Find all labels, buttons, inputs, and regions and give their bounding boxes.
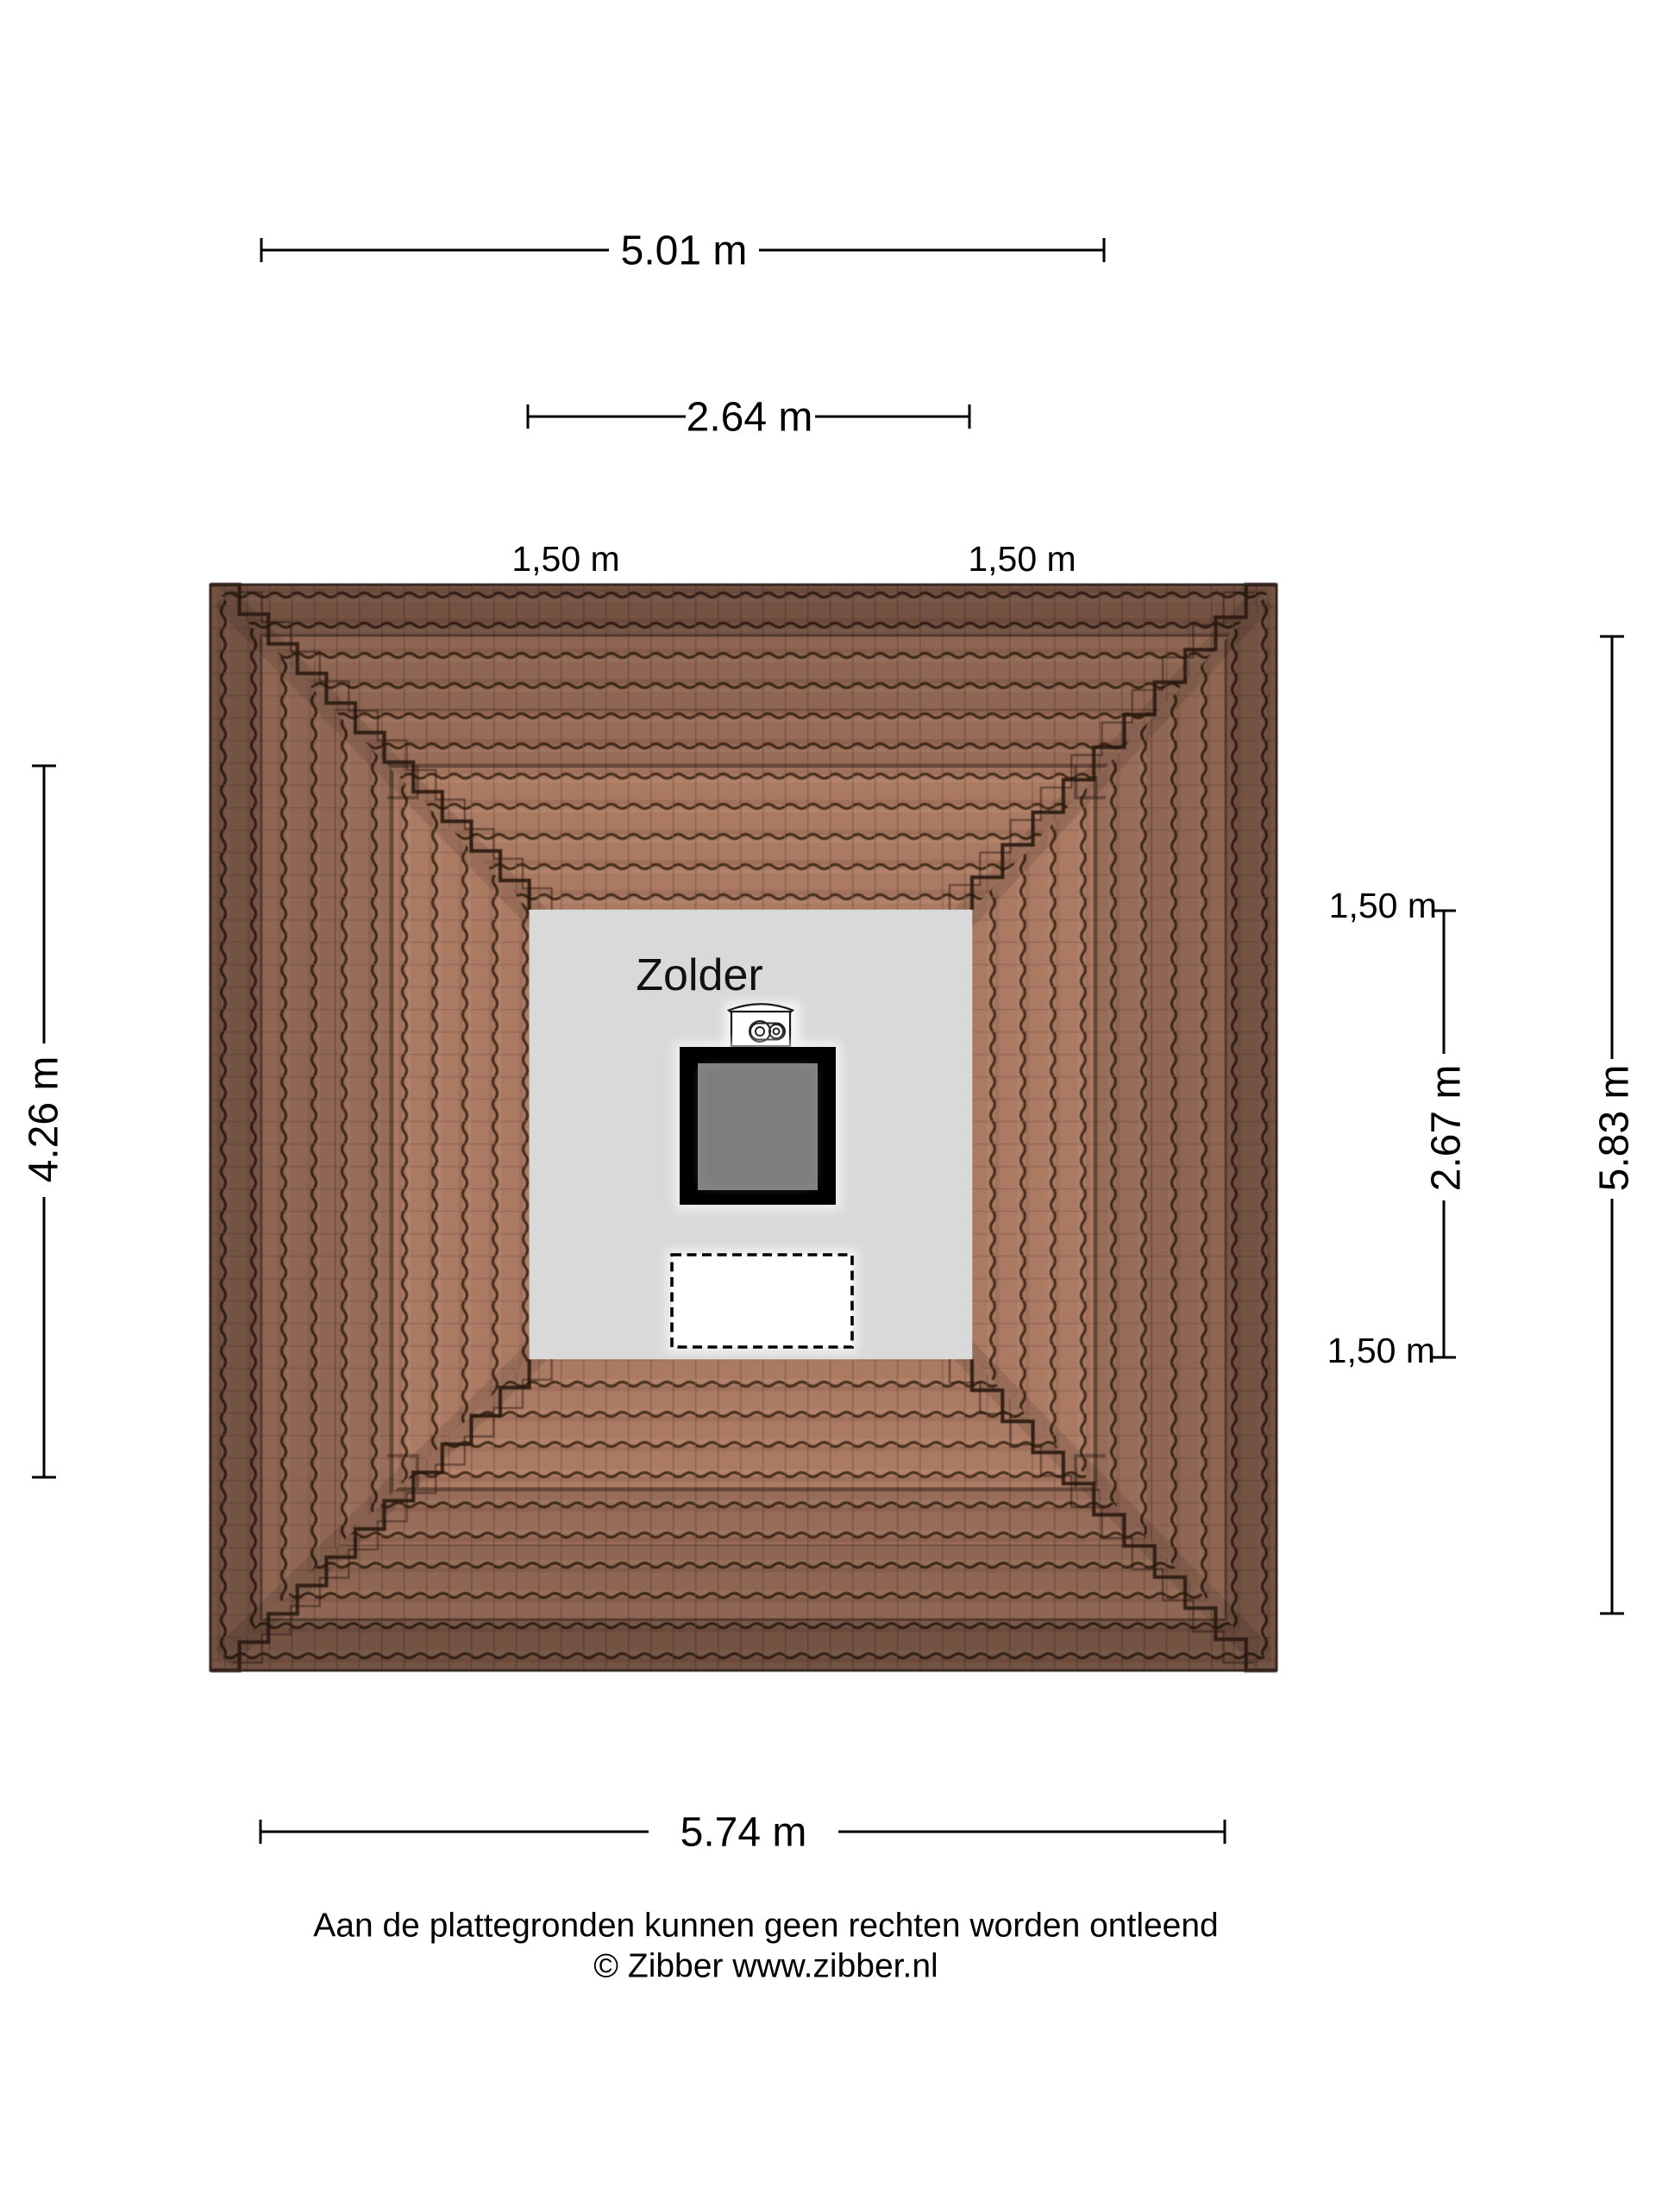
svg-text:Zolder: Zolder xyxy=(636,950,762,1000)
svg-text:5.74 m: 5.74 m xyxy=(681,1810,807,1856)
svg-text:4.26 m: 4.26 m xyxy=(22,1056,67,1183)
svg-text:2.67 m: 2.67 m xyxy=(1424,1065,1470,1192)
svg-text:5.83 m: 5.83 m xyxy=(1592,1065,1638,1192)
svg-text:1,50 m: 1,50 m xyxy=(1329,886,1437,925)
svg-text:5.01 m: 5.01 m xyxy=(621,229,748,274)
svg-text:1,50 m: 1,50 m xyxy=(1327,1331,1435,1370)
svg-text:1,50 m: 1,50 m xyxy=(968,539,1076,579)
svg-text:1,50 m: 1,50 m xyxy=(511,539,619,579)
svg-text:2.64 m: 2.64 m xyxy=(687,395,813,441)
svg-text:Aan de plattegronden kunnen ge: Aan de plattegronden kunnen geen rechten… xyxy=(313,1908,1219,1945)
svg-text:© Zibber www.zibber.nl: © Zibber www.zibber.nl xyxy=(593,1948,938,1985)
